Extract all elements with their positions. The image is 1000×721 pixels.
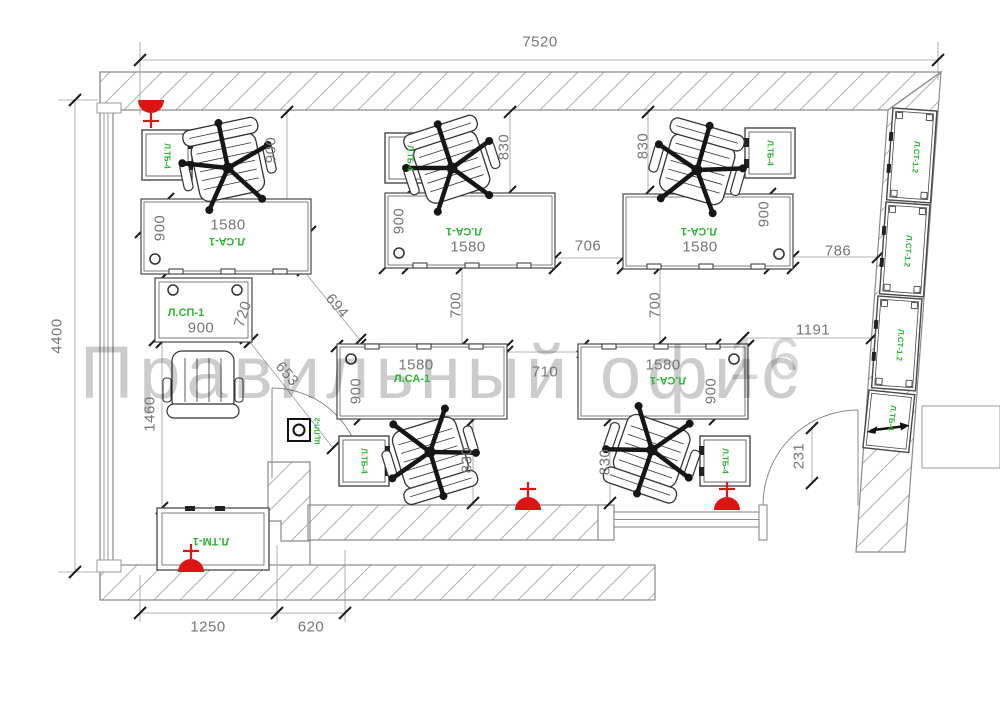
door-swing-right [763, 410, 858, 505]
dim-desk3-830: 830 [635, 133, 652, 160]
dim-desk2-830: 830 [496, 134, 513, 161]
entry-partition [614, 505, 767, 540]
label-desk-4: Л.СА-1 [394, 373, 430, 385]
dim-desk1-width: 1580 [210, 217, 245, 234]
dim-bottom-1250: 1250 [190, 619, 225, 636]
label-desk-3: Л.СА-1 [681, 225, 717, 237]
dim-desk2-depth: 900 [391, 208, 408, 235]
dim-gap-786: 786 [825, 243, 852, 260]
label-desk-5: Л.СА-1 [650, 374, 686, 386]
dim-desk3-width: 1580 [682, 239, 717, 256]
floor-plan-canvas: Правильный офис 16 7520 4400 1250 620 90… [0, 0, 1000, 721]
dim-desk4-depth: 900 [348, 378, 365, 405]
dim-overall-depth: 4400 [49, 318, 66, 353]
label-cabinet-4: Л.ТБ-4 [360, 448, 369, 474]
dim-desk3-700: 700 [647, 292, 664, 319]
wall-pier [598, 505, 614, 540]
label-cabinet-2: Л.ТБ-4 [406, 145, 415, 171]
ceiling-light-icon [515, 482, 541, 510]
dim-desk5-width: 1580 [645, 357, 680, 374]
dim-gap-710: 710 [532, 364, 559, 381]
dim-gap-706: 706 [575, 238, 602, 255]
dim-desk2-700: 700 [448, 292, 465, 319]
dim-desk2-width: 1580 [450, 239, 485, 256]
dim-desk3-depth: 900 [756, 201, 773, 228]
dim-desk1-depth-right: 900 [263, 137, 280, 164]
dim-bottom-620: 620 [298, 619, 325, 636]
electric-panel-icon [288, 419, 310, 441]
label-low-cabinet: Л.ТМ-1 [193, 535, 229, 547]
dim-sp-width: 900 [188, 320, 215, 337]
dim-desk1-depth-left: 900 [152, 215, 169, 242]
dim-desk5-830: 830 [597, 449, 614, 476]
label-electric-panel: Щ.ПЛ-2 [313, 417, 322, 444]
label-cabinet-5: Л.ТБ-4 [721, 448, 730, 474]
exterior-unit [922, 406, 1000, 468]
dim-overall-width: 7520 [522, 34, 557, 51]
label-cabinet-1: Л.ТБ-4 [163, 143, 172, 169]
ceiling-light-icon [138, 100, 164, 128]
dim-left-1460: 1460 [142, 396, 159, 431]
dim-desk4-830: 830 [459, 447, 476, 474]
dim-gap-1191: 1191 [796, 322, 830, 339]
label-cabinet-3: Л.ТБ-4 [766, 140, 775, 166]
dim-desk4-width: 1580 [398, 357, 433, 374]
label-desk-2: Л.СА-1 [446, 225, 482, 237]
top-wall [100, 72, 941, 110]
label-desk-1: Л.СА-1 [209, 235, 245, 247]
bottom-wall-right [308, 505, 612, 540]
dim-desk5-depth: 900 [703, 378, 720, 405]
entry-pier [268, 462, 310, 541]
label-meeting-table: Л.СП-1 [168, 307, 204, 319]
watermark: Правильный офис [80, 330, 804, 415]
dim-door-231: 231 [791, 443, 808, 470]
